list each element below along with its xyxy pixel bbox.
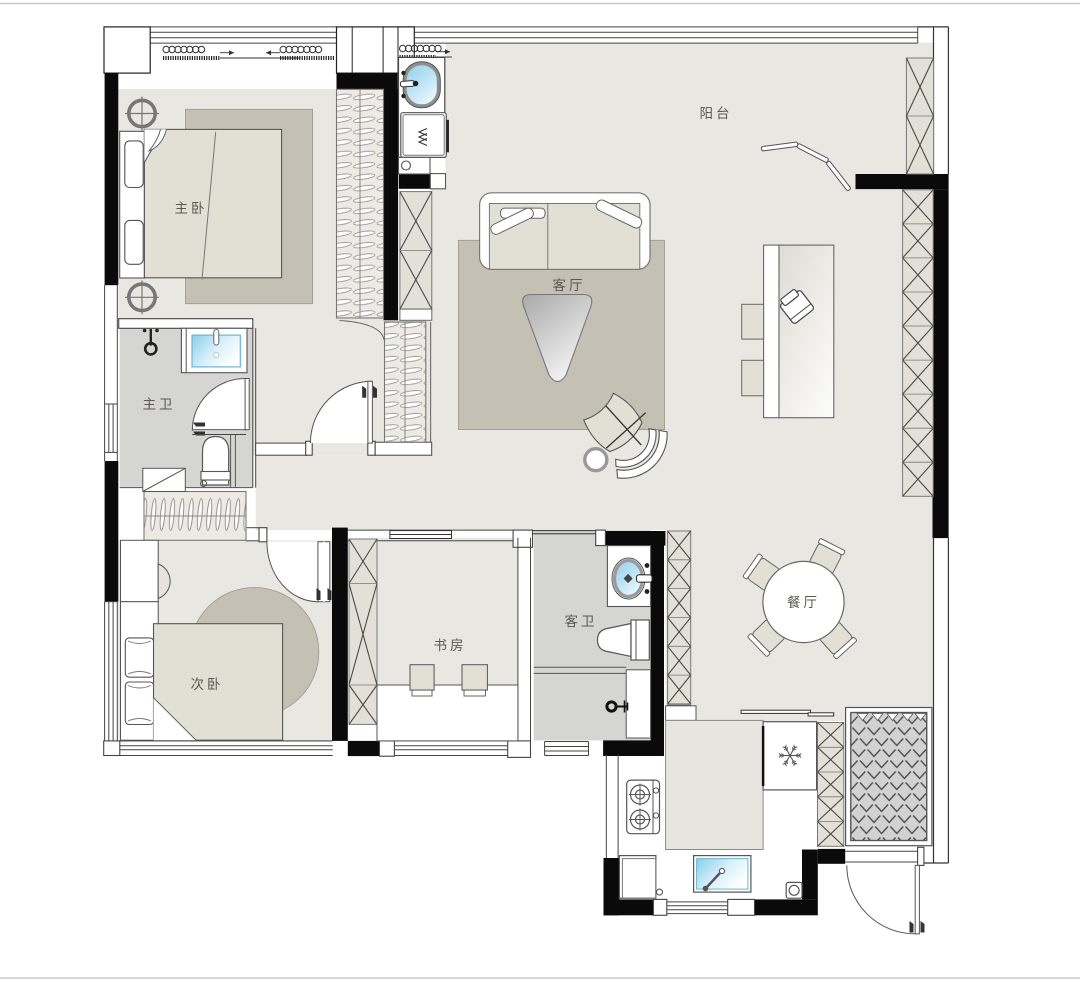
- svg-text:餐厅: 餐厅: [787, 595, 820, 610]
- svg-text:客卫: 客卫: [565, 613, 598, 629]
- svg-text:主卧: 主卧: [175, 201, 208, 216]
- svg-text:主卫: 主卫: [143, 397, 176, 412]
- svg-text:客厅: 客厅: [553, 277, 586, 293]
- svg-text:阳台: 阳台: [700, 106, 733, 121]
- svg-text:次卧: 次卧: [191, 677, 224, 692]
- svg-text:书房: 书房: [434, 638, 467, 653]
